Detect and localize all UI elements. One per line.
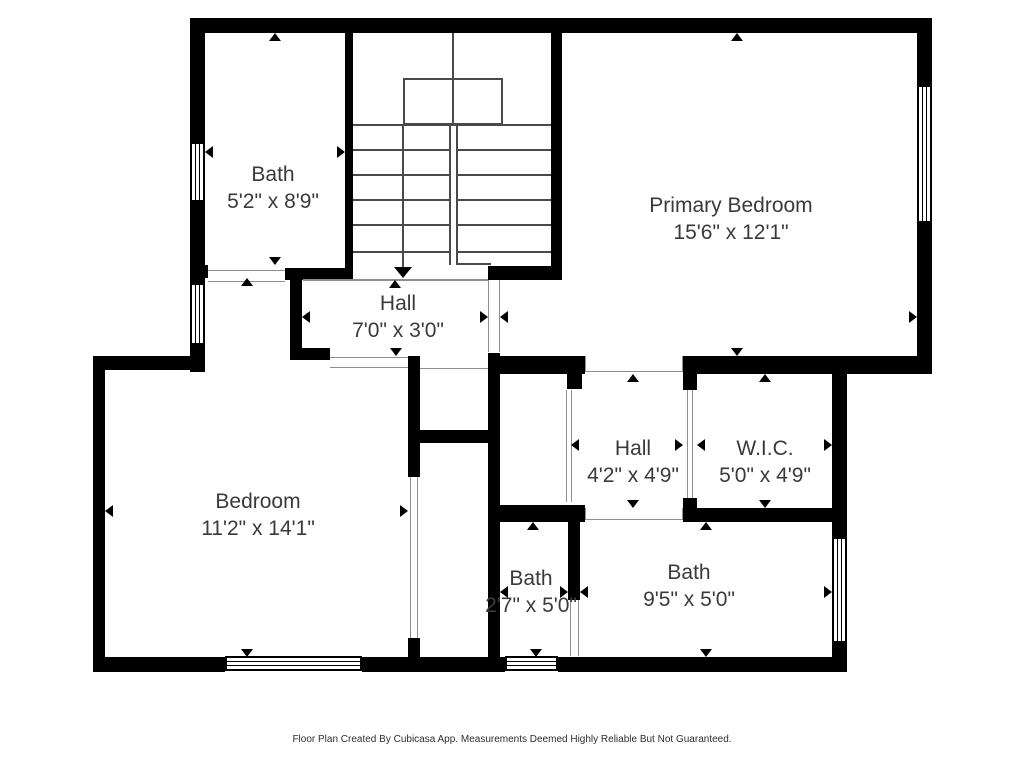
measure-arrow-down <box>269 257 281 265</box>
wall-segment <box>832 643 847 672</box>
stair-rail-line <box>449 124 451 265</box>
room-name: Bath <box>227 161 319 188</box>
room-name: Bath <box>643 559 735 586</box>
window <box>832 537 847 643</box>
room-name: Primary Bedroom <box>649 192 812 219</box>
wall-segment <box>408 638 420 657</box>
wall-segment <box>488 356 585 374</box>
wall-segment <box>683 508 847 522</box>
door-opening-line <box>682 356 683 372</box>
window <box>225 656 362 671</box>
door-opening-line <box>208 270 285 271</box>
measure-arrow-left <box>302 311 310 323</box>
room-dimensions: 7'0" x 3'0" <box>352 317 444 344</box>
measure-arrow-left <box>580 586 588 598</box>
measure-arrow-left <box>205 146 213 158</box>
measure-arrow-down <box>530 649 542 657</box>
room-dimensions: 9'5" x 5'0" <box>643 586 735 613</box>
door-opening-line <box>488 280 489 352</box>
window <box>190 283 205 345</box>
wall-segment <box>683 374 697 390</box>
measure-arrow-down <box>731 348 743 356</box>
room-label-w-i-c--5: W.I.C.5'0" x 4'9" <box>719 435 811 489</box>
measure-arrow-up <box>627 374 639 382</box>
door-opening-line <box>585 371 682 372</box>
stairs-direction-arrow <box>394 267 412 278</box>
room-label-bedroom-3: Bedroom11'2" x 14'1" <box>201 488 315 542</box>
measure-arrow-left <box>500 311 508 323</box>
room-dimensions: 2'7" x 5'0" <box>485 592 577 619</box>
door-opening-line <box>692 390 693 498</box>
wall-segment <box>558 657 847 672</box>
room-dimensions: 5'0" x 4'9" <box>719 462 811 489</box>
measure-arrow-up <box>269 33 281 41</box>
window <box>190 142 205 202</box>
wall-segment <box>290 348 330 360</box>
wall-segment <box>345 33 353 278</box>
wall-segment <box>408 356 420 477</box>
window <box>917 85 932 223</box>
stair-landing-outline <box>403 78 503 125</box>
door-opening-line <box>330 357 408 358</box>
measure-arrow-down <box>700 649 712 657</box>
room-name: Hall <box>352 290 444 317</box>
room-label-bath-0: Bath5'2" x 8'9" <box>227 161 319 215</box>
room-dimensions: 15'6" x 12'1" <box>649 219 812 246</box>
wall-segment <box>190 18 932 33</box>
window-pane-lines <box>226 661 361 666</box>
wall-segment <box>420 430 488 443</box>
door-opening-line <box>585 519 682 520</box>
room-dimensions: 5'2" x 8'9" <box>227 188 319 215</box>
window-pane-lines <box>195 284 200 344</box>
wall-segment <box>190 265 208 278</box>
wall-segment <box>683 356 932 374</box>
wall-segment <box>93 356 105 672</box>
room-label-primary-bedroom-1: Primary Bedroom15'6" x 12'1" <box>649 192 812 246</box>
window-pane-lines <box>922 86 927 222</box>
room-label-hall-2: Hall7'0" x 3'0" <box>352 290 444 344</box>
measure-arrow-right <box>909 311 917 323</box>
wall-segment <box>362 657 505 672</box>
door-opening-line <box>417 477 418 638</box>
room-dimensions: 11'2" x 14'1" <box>201 515 315 542</box>
room-name: Bedroom <box>201 488 315 515</box>
measure-arrow-left <box>697 439 705 451</box>
door-opening-line <box>566 390 567 502</box>
stair-rail-line <box>456 124 458 265</box>
door-opening-line <box>410 477 411 638</box>
measure-arrow-left <box>571 439 579 451</box>
measure-arrow-right <box>480 311 488 323</box>
wall-segment <box>93 356 205 370</box>
wall-segment <box>93 657 225 672</box>
measure-arrow-right <box>824 439 832 451</box>
wall-segment <box>290 280 302 348</box>
measure-arrow-right <box>400 505 408 517</box>
room-name: W.I.C. <box>719 435 811 462</box>
room-name: Bath <box>485 565 577 592</box>
measure-arrow-right <box>337 146 345 158</box>
room-label-bath-6: Bath2'7" x 5'0" <box>485 565 577 619</box>
measure-arrow-down <box>390 348 402 356</box>
room-label-bath-7: Bath9'5" x 5'0" <box>643 559 735 613</box>
window-pane-lines <box>195 143 200 201</box>
window <box>505 656 558 671</box>
wall-segment <box>567 374 582 389</box>
room-dimensions: 4'2" x 4'9" <box>587 462 679 489</box>
door-opening-line <box>578 600 579 656</box>
measure-arrow-up <box>389 280 401 288</box>
measure-arrow-left <box>105 505 113 517</box>
measure-arrow-down <box>627 500 639 508</box>
door-opening-line <box>682 508 683 520</box>
room-name: Hall <box>587 435 679 462</box>
door-opening-line <box>585 508 586 520</box>
door-opening-line <box>687 390 688 498</box>
room-label-hall-4: Hall4'2" x 4'9" <box>587 435 679 489</box>
window-pane-lines <box>837 538 842 642</box>
measure-arrow-up <box>700 522 712 530</box>
measure-arrow-down <box>241 649 253 657</box>
door-opening-line <box>330 367 408 368</box>
wall-segment <box>551 33 562 280</box>
measure-arrow-up <box>241 278 253 286</box>
floor-plan-canvas: Bath5'2" x 8'9"Primary Bedroom15'6" x 12… <box>0 0 1024 768</box>
measure-arrow-down <box>759 500 771 508</box>
floor-plan-page: Bath5'2" x 8'9"Primary Bedroom15'6" x 12… <box>0 0 1024 768</box>
measure-arrow-up <box>759 374 771 382</box>
footer-disclaimer: Floor Plan Created By Cubicasa App. Meas… <box>0 734 1024 745</box>
window-pane-lines <box>506 661 557 666</box>
wall-segment <box>917 223 932 374</box>
stair-tread-line <box>402 124 404 270</box>
wall-segment <box>917 33 932 85</box>
measure-arrow-right <box>824 586 832 598</box>
measure-arrow-up <box>527 522 539 530</box>
door-opening-line <box>420 368 488 369</box>
measure-arrow-up <box>731 33 743 41</box>
wall-segment <box>190 33 205 142</box>
door-opening-line <box>585 356 586 372</box>
